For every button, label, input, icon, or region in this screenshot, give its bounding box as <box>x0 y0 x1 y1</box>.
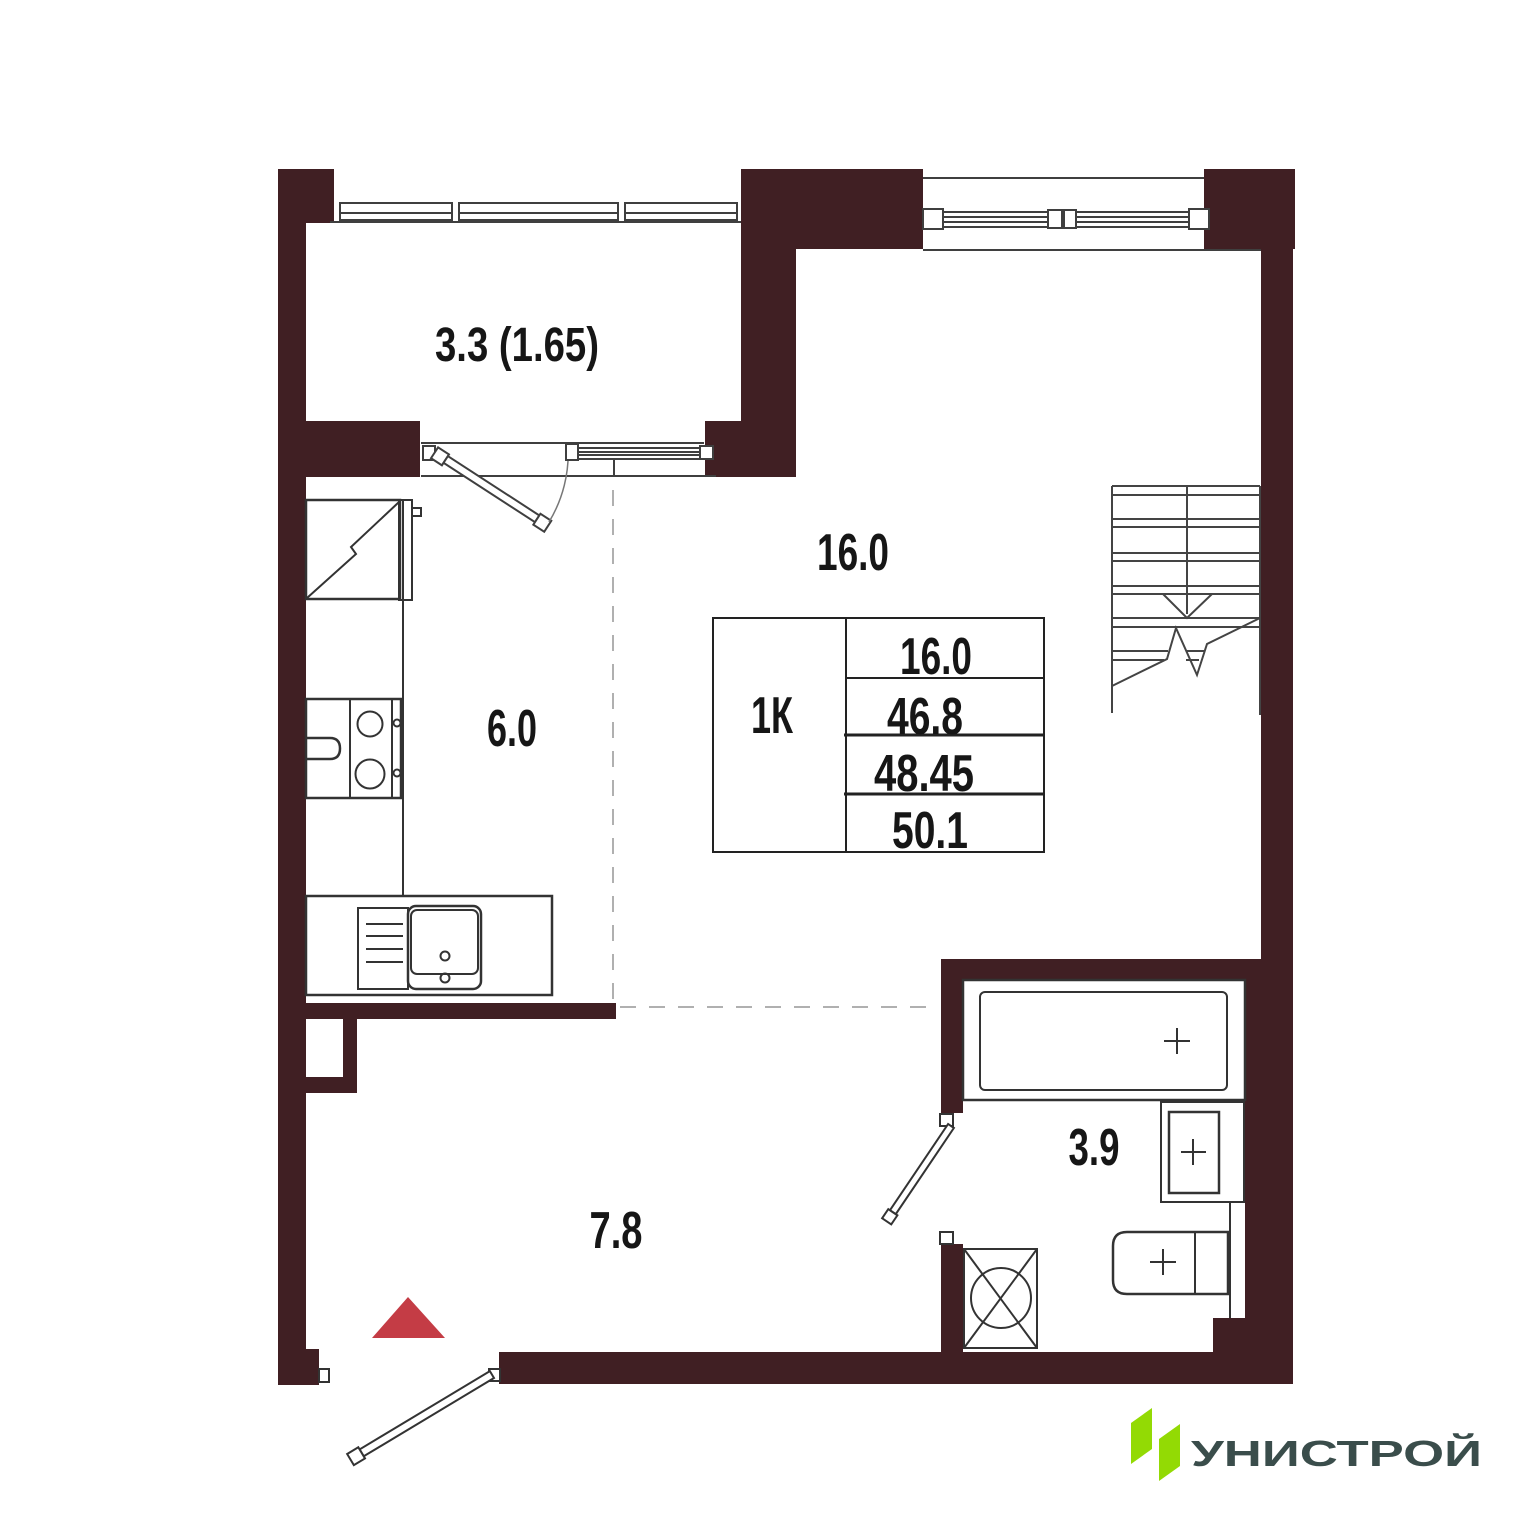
svg-text:6.0: 6.0 <box>487 700 537 758</box>
svg-text:16.0: 16.0 <box>817 524 889 582</box>
svg-text:48.45: 48.45 <box>874 745 974 803</box>
svg-text:1К: 1К <box>751 687 793 745</box>
svg-text:16.0: 16.0 <box>900 628 972 686</box>
svg-text:7.8: 7.8 <box>590 1202 643 1260</box>
svg-text:3.9: 3.9 <box>1069 1119 1120 1177</box>
svg-text:50.1: 50.1 <box>892 802 968 860</box>
svg-text:3.3 (1.65): 3.3 (1.65) <box>435 319 599 372</box>
svg-text:УНИСТРОЙ: УНИСТРОЙ <box>1191 1432 1482 1474</box>
svg-text:46.8: 46.8 <box>887 688 963 746</box>
